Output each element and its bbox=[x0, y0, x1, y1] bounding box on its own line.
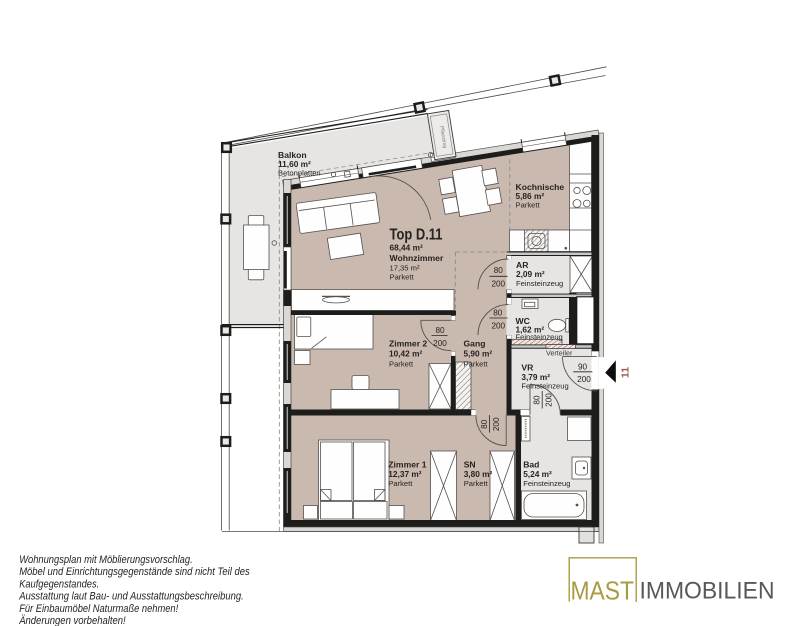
svg-text:200: 200 bbox=[491, 280, 505, 289]
svg-text:Gang: Gang bbox=[464, 339, 486, 349]
svg-text:Parkett: Parkett bbox=[464, 479, 489, 488]
svg-text:200: 200 bbox=[492, 417, 501, 431]
svg-text:Änderungen vorbehalten!: Änderungen vorbehalten! bbox=[18, 615, 125, 626]
svg-text:MAST: MAST bbox=[571, 576, 635, 606]
svg-text:17,35 m²: 17,35 m² bbox=[390, 264, 420, 273]
svg-text:11,60 m²: 11,60 m² bbox=[278, 159, 311, 169]
svg-text:Feinsteinzeug: Feinsteinzeug bbox=[523, 479, 570, 488]
svg-text:Für Einbaumöbel Naturmaße nehm: Für Einbaumöbel Naturmaße nehmen! bbox=[19, 603, 178, 615]
svg-text:Parkett: Parkett bbox=[388, 479, 413, 488]
svg-text:Feinsteinzeug: Feinsteinzeug bbox=[516, 333, 563, 342]
svg-text:12,37 m²: 12,37 m² bbox=[388, 469, 421, 479]
svg-text:IMMOBILIEN: IMMOBILIEN bbox=[640, 578, 775, 605]
svg-text:90: 90 bbox=[578, 363, 588, 372]
svg-text:Wohnungsplan mit Möblierungsvo: Wohnungsplan mit Möblierungsvorschlag. bbox=[19, 554, 193, 566]
svg-text:Feinsteinzeug: Feinsteinzeug bbox=[516, 279, 563, 288]
svg-text:Parkett: Parkett bbox=[516, 200, 541, 209]
svg-text:80: 80 bbox=[493, 308, 503, 317]
svg-text:200: 200 bbox=[491, 321, 505, 330]
svg-text:Zimmer 2: Zimmer 2 bbox=[389, 339, 427, 349]
svg-text:Bad: Bad bbox=[523, 460, 539, 470]
svg-text:Parkett: Parkett bbox=[389, 359, 414, 368]
svg-text:80: 80 bbox=[480, 419, 489, 429]
svg-text:SN: SN bbox=[464, 460, 476, 470]
svg-text:68,44 m²: 68,44 m² bbox=[390, 243, 423, 253]
svg-text:Zimmer 1: Zimmer 1 bbox=[388, 460, 426, 470]
svg-text:10,42 m²: 10,42 m² bbox=[389, 349, 422, 359]
svg-text:Möbel und Einrichtungsgegenstä: Möbel und Einrichtungsgegenstände sind n… bbox=[19, 566, 250, 578]
svg-text:80: 80 bbox=[435, 326, 445, 335]
svg-text:2,09 m²: 2,09 m² bbox=[516, 269, 545, 279]
svg-text:5,90 m²: 5,90 m² bbox=[464, 349, 493, 359]
svg-text:Feinsteinzeug: Feinsteinzeug bbox=[521, 382, 568, 391]
svg-text:5,24 m²: 5,24 m² bbox=[523, 469, 552, 479]
svg-text:Parkett: Parkett bbox=[464, 359, 489, 368]
svg-text:80: 80 bbox=[494, 266, 504, 275]
svg-text:Ausstattung laut Bau- und Auss: Ausstattung laut Bau- und Ausstattungsbe… bbox=[18, 591, 243, 603]
svg-text:11: 11 bbox=[619, 367, 631, 378]
svg-text:VR: VR bbox=[521, 363, 534, 373]
svg-text:200: 200 bbox=[545, 393, 554, 407]
svg-text:Top D.11: Top D.11 bbox=[390, 227, 443, 244]
svg-text:5,86 m²: 5,86 m² bbox=[516, 191, 545, 201]
svg-text:200: 200 bbox=[577, 375, 591, 384]
svg-text:Wohnzimmer: Wohnzimmer bbox=[390, 253, 444, 263]
svg-text:Kaufgegenstandes.: Kaufgegenstandes. bbox=[19, 578, 99, 590]
svg-text:3,80 m²: 3,80 m² bbox=[464, 469, 493, 479]
svg-text:80: 80 bbox=[533, 395, 542, 405]
svg-text:Parkett: Parkett bbox=[390, 272, 415, 281]
svg-text:200: 200 bbox=[433, 339, 447, 348]
svg-text:Verteiler: Verteiler bbox=[546, 349, 573, 358]
svg-text:3,79 m²: 3,79 m² bbox=[521, 372, 550, 382]
svg-text:Betonplatten: Betonplatten bbox=[278, 168, 321, 177]
